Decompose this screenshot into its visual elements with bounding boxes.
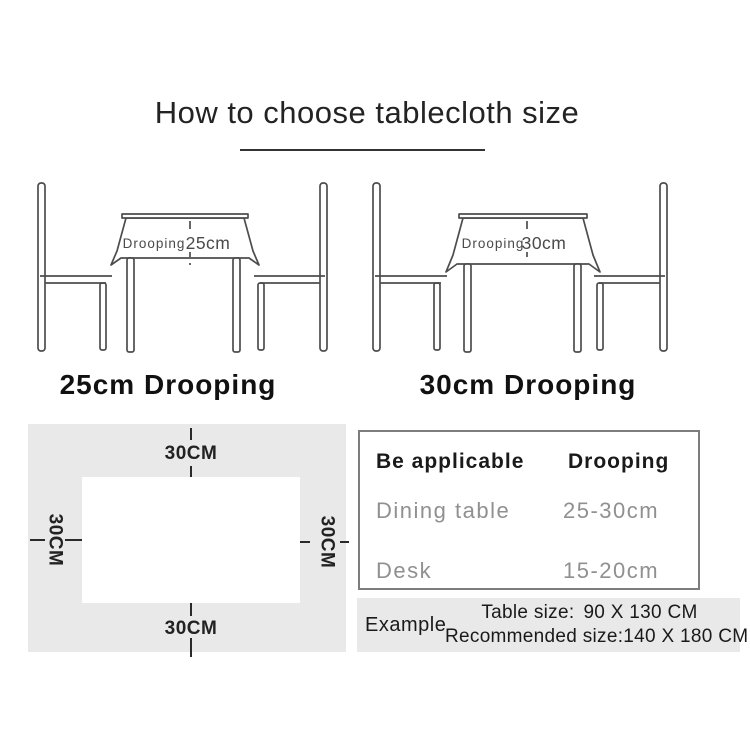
column-header-be-applicable: Be applicable [376, 450, 524, 474]
table-leg [464, 264, 471, 352]
drooping-label-prefix: Drooping [462, 236, 525, 251]
top-dimension-label: 30CM [165, 443, 218, 464]
example-lines: Table size:90 X 130 CM Recommended size:… [445, 601, 734, 649]
drooping-label-value: 25cm [186, 233, 231, 253]
left-dimension-label: 30CM [45, 514, 66, 567]
table-size-label: Table size: [481, 602, 574, 623]
size-diagram: 30CM 30CM 30CM 30CM [20, 420, 355, 660]
tablecloth-illustrations: Drooping 25cm Drooping 30cm [20, 175, 720, 360]
chair-icon [594, 183, 667, 351]
chair-icon [254, 183, 327, 351]
table-row-desk-value: 15-20cm [563, 558, 659, 584]
title-underline [240, 149, 485, 151]
chair-icon [38, 183, 112, 351]
drooping-label-value: 30cm [522, 233, 567, 253]
example-box: Example Table size:90 X 130 CM Recommend… [357, 598, 740, 652]
example-label: Example [365, 614, 446, 637]
chair-icon [373, 183, 447, 351]
table-row-dining-value: 25-30cm [563, 498, 659, 524]
recommended-size-label: Recommended size: [445, 626, 623, 647]
table-leg [574, 264, 581, 352]
column-header-drooping: Drooping [568, 450, 669, 474]
table-size-value: 90 X 130 CM [583, 601, 697, 625]
table-leg [127, 258, 134, 352]
tabletop-area [82, 477, 300, 603]
right-dimension-label: 30CM [317, 516, 338, 569]
bottom-dimension-label: 30CM [165, 618, 218, 639]
example-recommended-line: Recommended size:140 X 180 CM [445, 625, 734, 649]
table-row-desk-name: Desk [376, 558, 432, 584]
recommended-size-value: 140 X 180 CM [623, 626, 748, 647]
page-title: How to choose tablecloth size [0, 95, 734, 131]
example-table-size-line: Table size:90 X 130 CM [445, 601, 734, 625]
table-row-dining-name: Dining table [376, 498, 510, 524]
drooping-reference-table: Be applicable Drooping Dining table 25-3… [358, 430, 700, 590]
caption-30cm-drooping: 30cm Drooping [378, 369, 678, 401]
caption-25cm-drooping: 25cm Drooping [18, 369, 318, 401]
table-leg [233, 258, 240, 352]
drooping-label-prefix: Drooping [123, 236, 186, 251]
illustration-25cm: Drooping 25cm [38, 183, 327, 352]
illustration-30cm: Drooping 30cm [373, 183, 667, 352]
